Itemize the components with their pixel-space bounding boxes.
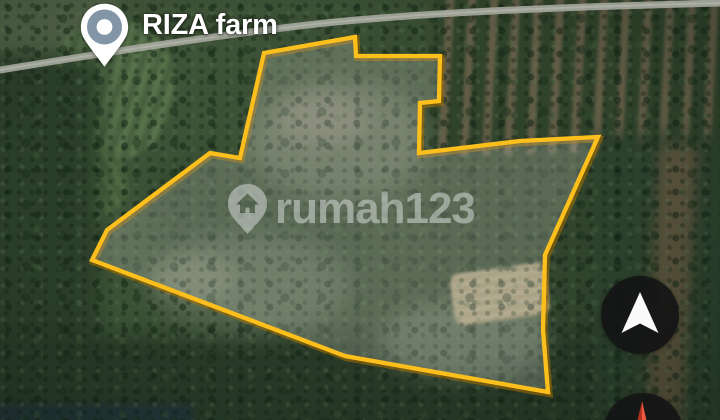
place-pin-icon bbox=[78, 2, 131, 72]
my-location-button[interactable] bbox=[601, 276, 679, 354]
terrain-patch bbox=[42, 140, 135, 229]
terrain-patch bbox=[0, 404, 194, 420]
map-view[interactable]: RIZA farm rumah123 bbox=[0, 0, 720, 420]
terrain-patch bbox=[278, 95, 368, 145]
terrain-patch bbox=[250, 80, 430, 200]
property-boundary-shadow bbox=[94, 39, 600, 394]
terrain-patch bbox=[432, 0, 720, 157]
terrain-patch bbox=[150, 165, 370, 305]
terrain-patch bbox=[150, 255, 235, 303]
navigation-arrow-icon bbox=[620, 290, 660, 336]
house-pin-icon bbox=[228, 184, 267, 234]
compass-button[interactable] bbox=[603, 393, 683, 420]
watermark-text: rumah123 bbox=[275, 184, 475, 234]
terrain-patch bbox=[0, 55, 100, 420]
terrain-patch bbox=[449, 262, 551, 327]
terrain-patch bbox=[595, 135, 720, 420]
compass-needle-icon bbox=[608, 397, 678, 420]
property-boundary bbox=[92, 37, 598, 392]
terrain-patch bbox=[380, 300, 550, 380]
place-marker[interactable]: RIZA farm bbox=[78, 2, 328, 72]
place-label: RIZA farm bbox=[142, 9, 278, 42]
terrain-patch bbox=[150, 235, 350, 335]
rumah123-watermark: rumah123 bbox=[228, 184, 475, 234]
